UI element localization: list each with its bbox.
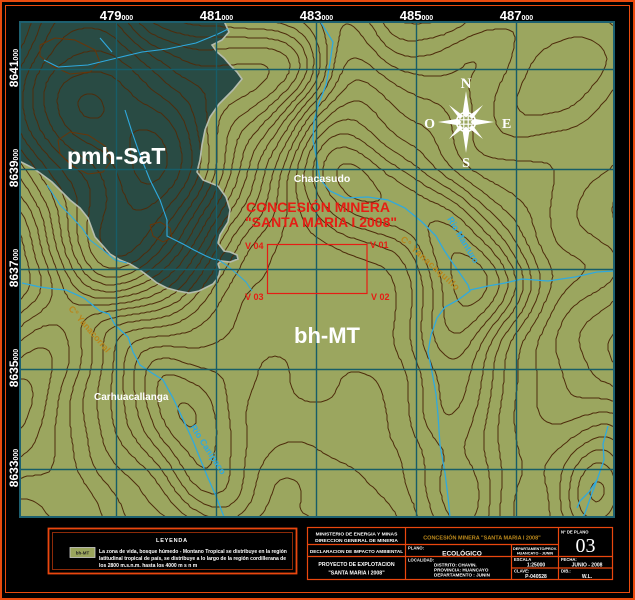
svg-text:pmh-SaT: pmh-SaT xyxy=(67,143,165,169)
svg-text:latitudinal tropical de país,: latitudinal tropical de país, se distrib… xyxy=(99,556,286,562)
svg-text:03: 03 xyxy=(576,535,596,557)
svg-text:LOCALIDAD:: LOCALIDAD: xyxy=(408,558,434,563)
svg-text:LEYENDA: LEYENDA xyxy=(156,538,188,544)
svg-text:Carhuacallanga: Carhuacallanga xyxy=(94,392,169,403)
svg-text:CONCESIÓN MINERA "SANTA MARIA: CONCESIÓN MINERA "SANTA MARIA I 2008" xyxy=(423,534,541,542)
svg-text:DECLARACION DE IMPACTO AMBI: DECLARACION DE IMPACTO AMBIENTAL xyxy=(310,549,403,554)
svg-text:W.L.: W.L. xyxy=(582,574,593,580)
svg-text:V 03: V 03 xyxy=(245,292,264,302)
svg-text:DIB.:: DIB.: xyxy=(561,569,571,574)
svg-text:V 01: V 01 xyxy=(370,240,389,250)
svg-text:1:25000: 1:25000 xyxy=(527,563,546,569)
svg-text:DIRECCION GENERAL DE MINERI: DIRECCION GENERAL DE MINERIA xyxy=(315,538,398,544)
svg-text:DEPARTAMENTO : JUNIN: DEPARTAMENTO : JUNIN xyxy=(434,573,491,578)
svg-text:CONCESIÓN MINERA: CONCESIÓN MINERA xyxy=(246,198,390,215)
svg-text:V 04: V 04 xyxy=(245,241,264,251)
svg-text:"SANTA MARIA I 2008": "SANTA MARIA I 2008" xyxy=(328,571,385,577)
svg-text:MINISTERIO DE ENERGIA Y MI: MINISTERIO DE ENERGIA Y MINAS xyxy=(316,532,398,538)
svg-text:ECOLÓGICO: ECOLÓGICO xyxy=(442,549,482,558)
svg-text:DEPARTAMENTO/PROV.: DEPARTAMENTO/PROV. xyxy=(513,547,557,551)
svg-text:JUNIO - 2008: JUNIO - 2008 xyxy=(572,563,603,569)
svg-text:PLANO:: PLANO: xyxy=(408,546,424,551)
svg-text:bh-MT: bh-MT xyxy=(76,551,90,556)
svg-text:los 2800 m.s.n.m. hasta los 4: los 2800 m.s.n.m. hasta los 4000 m s n m xyxy=(99,563,198,569)
svg-text:P-040528: P-040528 xyxy=(525,574,547,580)
svg-text:N: N xyxy=(461,76,472,92)
svg-text:PROYECTO DE EXPLOTACION: PROYECTO DE EXPLOTACION xyxy=(318,562,394,568)
svg-text:Chacasudo: Chacasudo xyxy=(294,173,351,185)
svg-text:N° DE PLANO: N° DE PLANO xyxy=(561,530,589,535)
svg-text:bh-MT: bh-MT xyxy=(294,323,361,348)
svg-text:O: O xyxy=(424,117,435,132)
svg-text:ESCALA: ESCALA xyxy=(514,557,531,562)
svg-text:"SANTA MARIA I 2008": "SANTA MARIA I 2008" xyxy=(245,214,397,230)
svg-text:E: E xyxy=(502,117,511,132)
svg-text:La zona de vida, bosque húmedo: La zona de vida, bosque húmedo - Montano… xyxy=(99,549,287,555)
svg-text:V 02: V 02 xyxy=(371,292,390,302)
svg-text:FECHA:: FECHA: xyxy=(561,557,577,562)
svg-text:CLAVE:: CLAVE: xyxy=(514,569,529,574)
svg-text:S: S xyxy=(462,156,470,171)
svg-text:HUANCAYO - JUNIN: HUANCAYO - JUNIN xyxy=(517,552,554,556)
